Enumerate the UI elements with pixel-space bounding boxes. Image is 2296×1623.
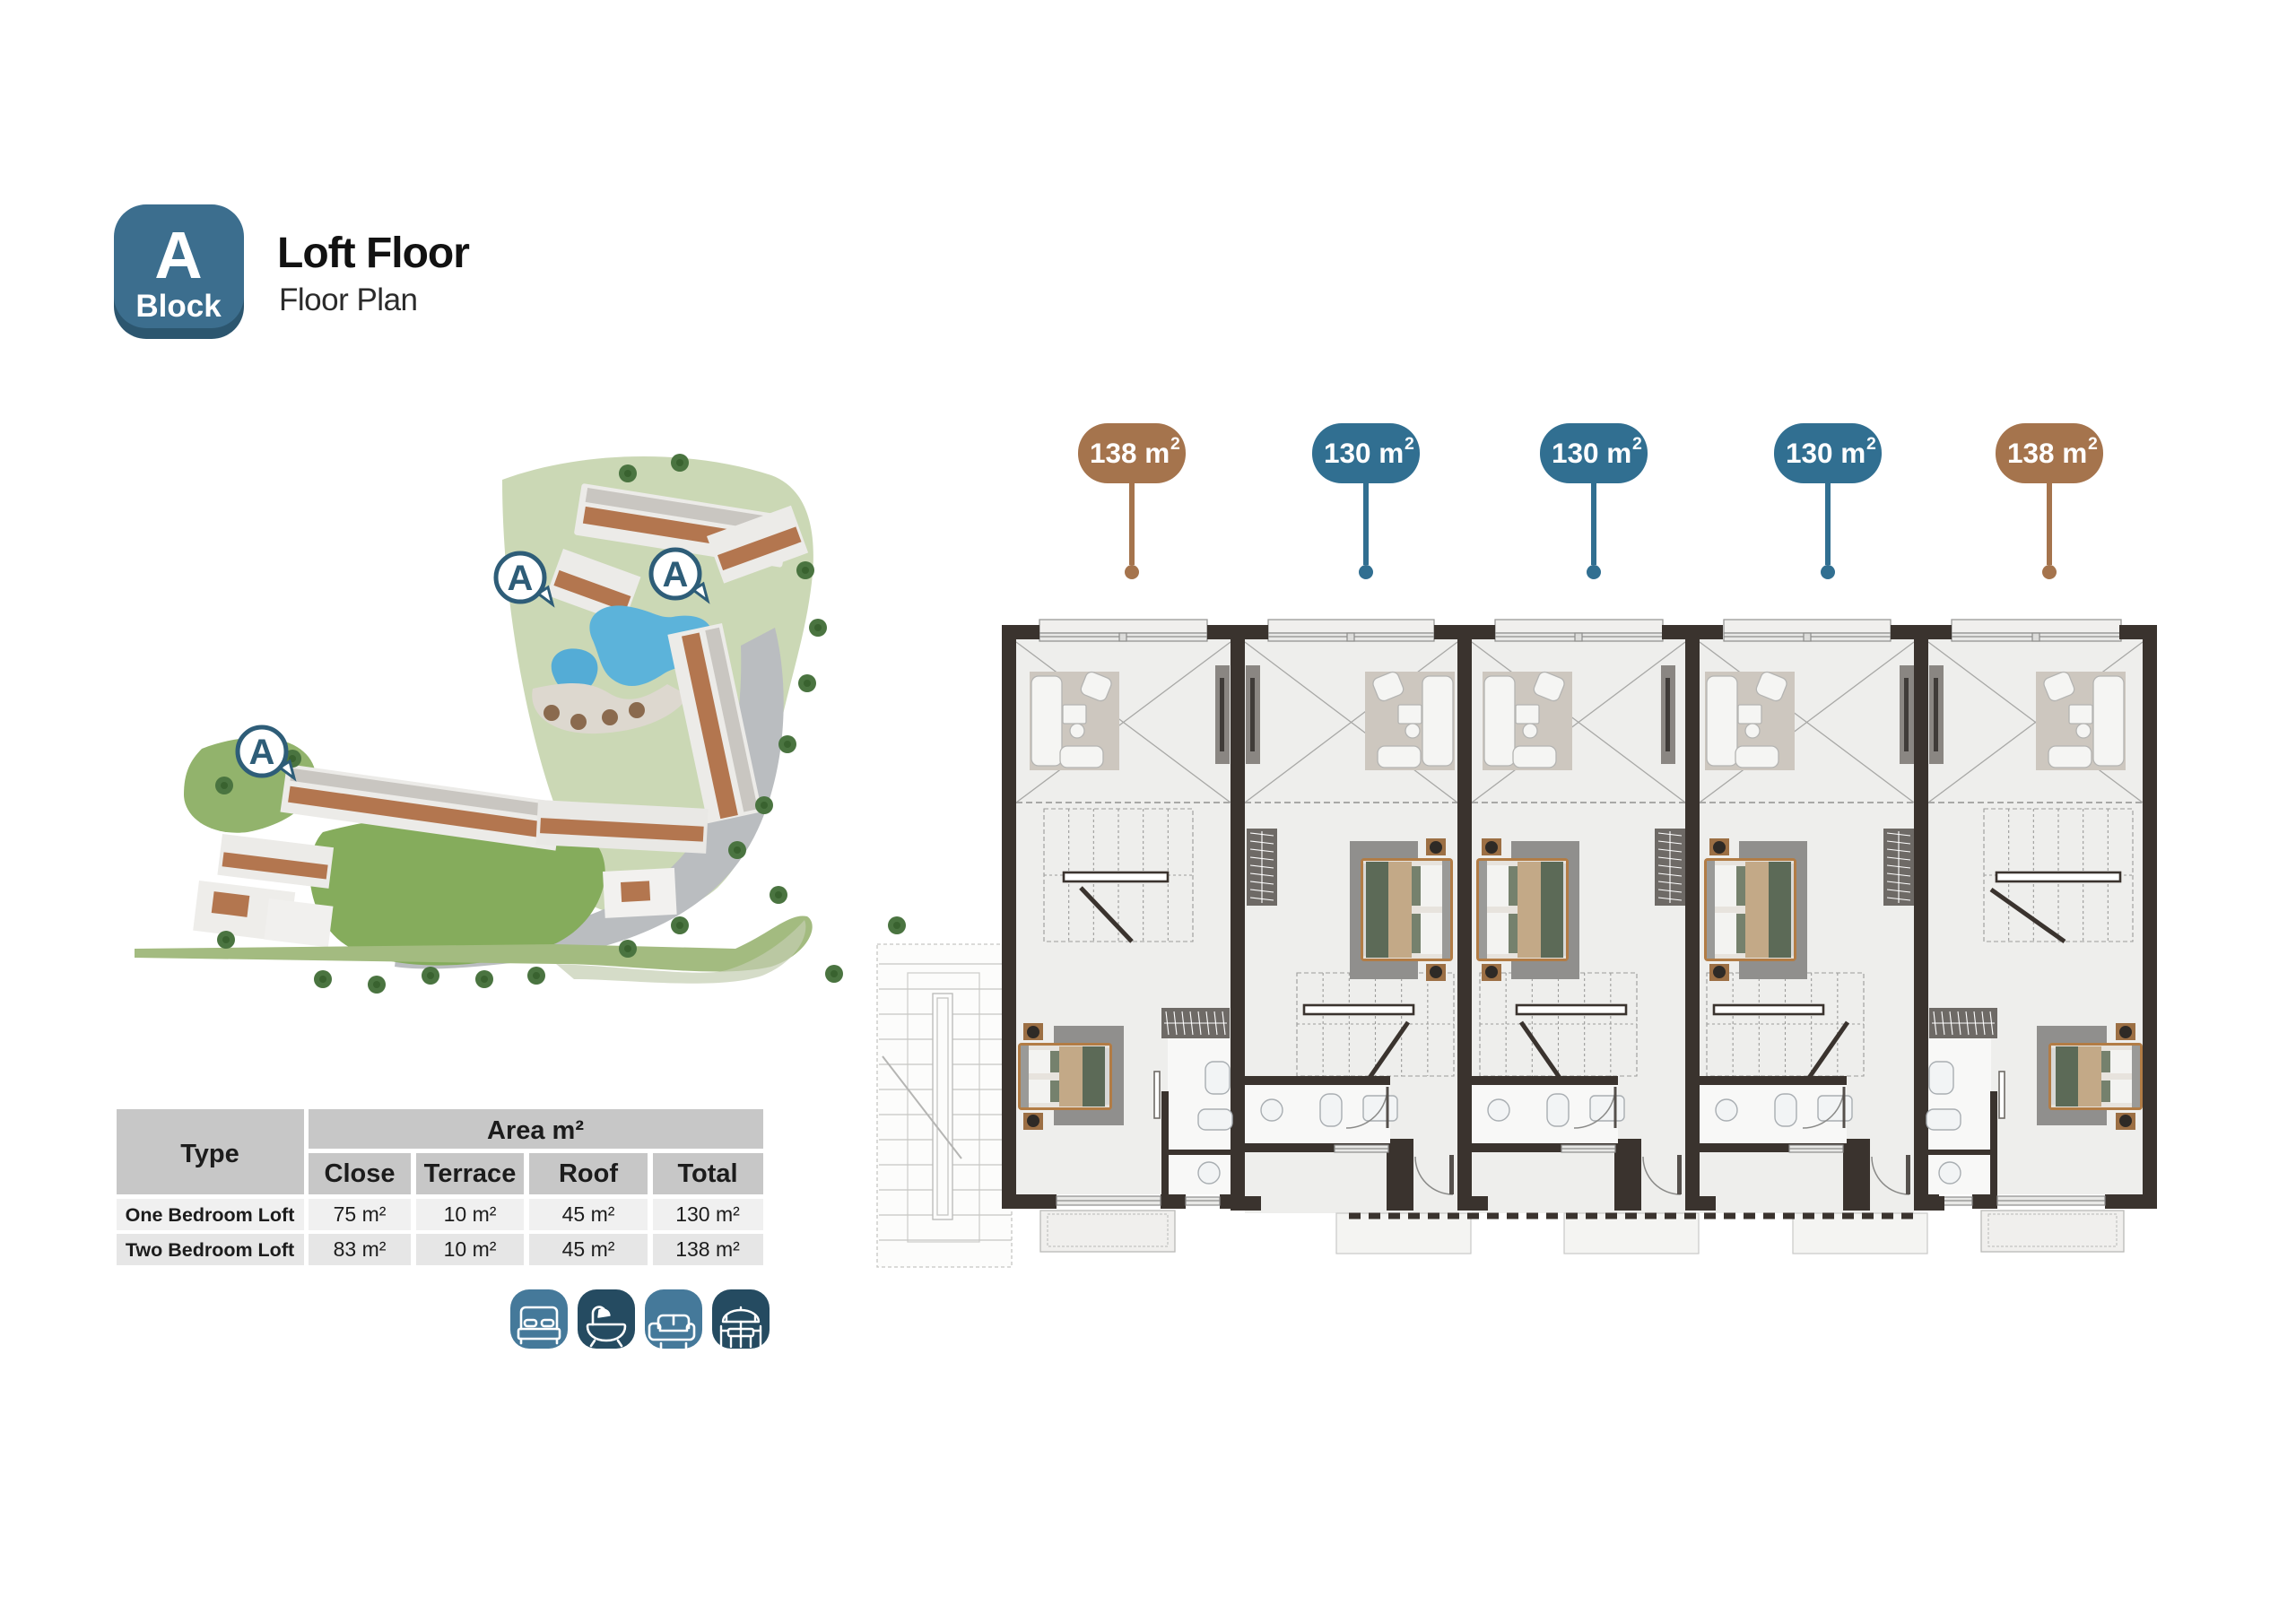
svg-text:130 m: 130 m [1324,437,1404,469]
svg-text:2: 2 [1170,434,1180,454]
svg-text:45 m²: 45 m² [562,1237,615,1261]
svg-text:Floor Plan: Floor Plan [279,282,418,317]
svg-text:83 m²: 83 m² [334,1237,387,1261]
svg-text:10 m²: 10 m² [444,1202,497,1226]
svg-text:A: A [508,559,534,598]
svg-text:Close: Close [325,1159,396,1188]
svg-text:2: 2 [1405,434,1414,454]
svg-text:138 m²: 138 m² [675,1237,740,1261]
svg-text:Loft Floor: Loft Floor [277,230,469,277]
svg-text:10 m²: 10 m² [444,1237,497,1261]
svg-text:Type: Type [180,1140,239,1168]
svg-text:2: 2 [1866,434,1876,454]
svg-text:2: 2 [2088,434,2098,454]
svg-text:A: A [249,733,275,772]
svg-text:130 m²: 130 m² [675,1202,740,1226]
svg-text:One Bedroom Loft: One Bedroom Loft [126,1204,295,1226]
svg-text:45 m²: 45 m² [562,1202,615,1226]
svg-text:130 m: 130 m [1786,437,1865,469]
svg-text:A: A [663,555,689,595]
svg-text:Roof: Roof [559,1159,618,1188]
svg-text:Area m²: Area m² [487,1116,584,1145]
svg-text:Total: Total [677,1159,737,1188]
svg-text:Block: Block [135,289,222,324]
svg-text:75 m²: 75 m² [334,1202,387,1226]
svg-text:2: 2 [1632,434,1642,454]
svg-text:A: A [154,218,202,292]
svg-text:130 m: 130 m [1552,437,1631,469]
svg-text:138 m: 138 m [2007,437,2087,469]
svg-text:138 m: 138 m [1090,437,1170,469]
svg-text:Two Bedroom Loft: Two Bedroom Loft [126,1239,294,1261]
svg-text:Terrace: Terrace [424,1159,517,1188]
